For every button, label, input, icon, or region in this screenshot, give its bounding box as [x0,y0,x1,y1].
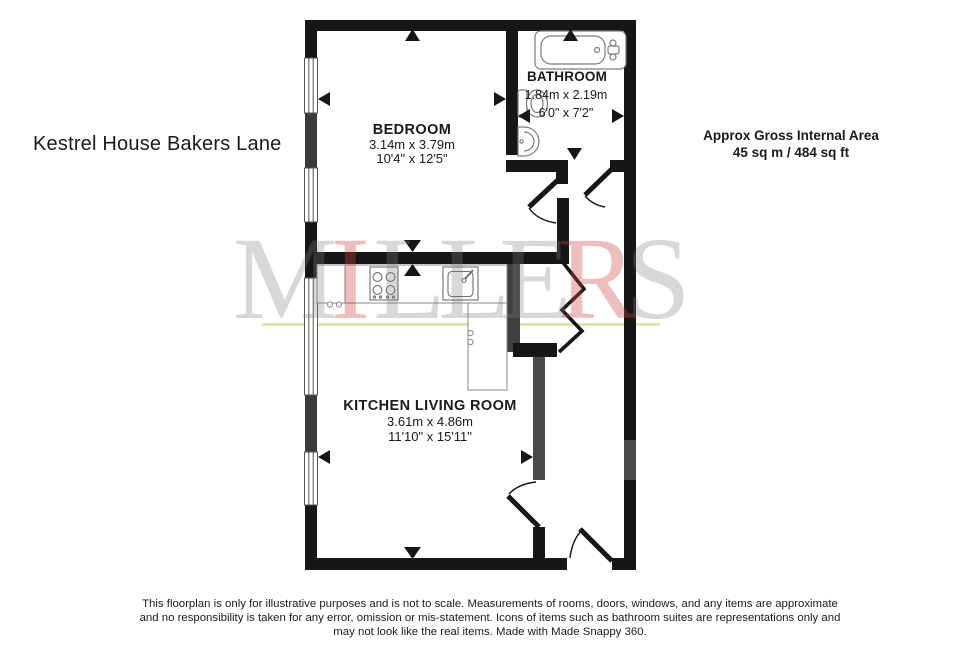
millers-watermark: M I L L E R S [233,213,691,344]
disclaimer: This floorplan is only for illustrative … [0,597,980,639]
bathtub-icon [535,31,626,69]
kitchen-arrow-down [404,547,421,559]
bathroom-arrow-down [567,148,582,160]
kitchen-door [508,482,539,527]
kitchen-label: KITCHEN LIVING ROOM 3.61m x 4.86m 11'10"… [343,398,517,444]
bathroom-sink-icon [518,127,539,156]
entrance-door [570,529,612,561]
disclaimer-line-3: may not look like the real items. Made w… [0,625,980,639]
bedroom-arrow-left [318,92,330,106]
window-bedroom-1 [305,58,318,113]
kitchen-imperial: 11'10" x 15'11" [388,429,472,444]
bathroom-arrow-right [612,109,624,123]
bathroom-imperial: 6'0" x 7'2" [539,106,594,120]
bedroom-metric: 3.14m x 3.79m [369,137,455,152]
kitchen-arrow-right [521,450,533,464]
bathroom-door [585,166,615,207]
bathroom-name: BATHROOM [527,69,607,84]
floorplan-page: Kestrel House Bakers Lane Approx Gross I… [0,0,980,653]
kitchen-metric: 3.61m x 4.86m [387,414,473,429]
bedroom-arrow-right [494,92,506,106]
bedroom-label: BEDROOM 3.14m x 3.79m 10'4" x 12'5" [369,122,455,166]
bedroom-imperial: 10'4" x 12'5" [376,151,448,166]
bedroom-name: BEDROOM [373,122,452,138]
kitchen-arrow-left [318,450,330,464]
disclaimer-line-2: and no responsibility is taken for any e… [0,611,980,625]
floorplan-canvas: BEDROOM 3.14m x 3.79m 10'4" x 12'5" BATH… [0,0,980,653]
kitchen-name: KITCHEN LIVING ROOM [343,398,517,414]
bathroom-metric: 1.84m x 2.19m [525,88,608,102]
disclaimer-line-1: This floorplan is only for illustrative … [0,597,980,611]
window-kitchen-2 [305,452,318,505]
